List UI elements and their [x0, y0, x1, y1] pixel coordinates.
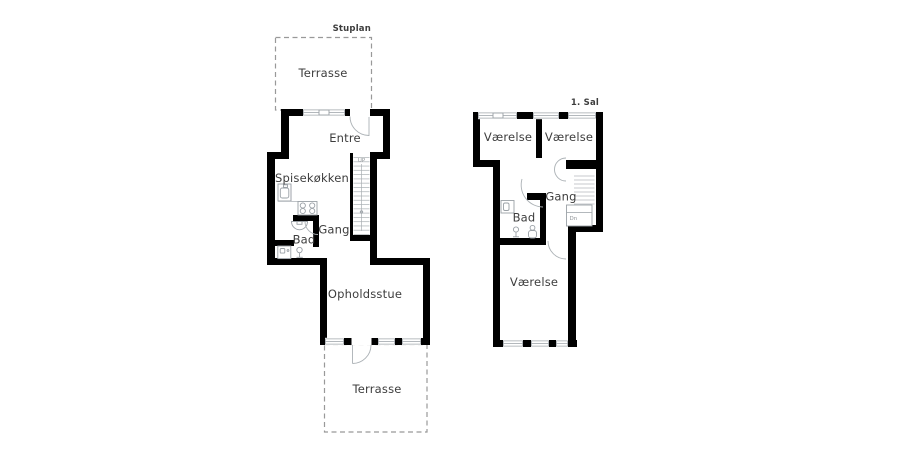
window [533, 112, 559, 119]
wall-segment [267, 258, 327, 265]
room-label-terrace-top: Terrasse [297, 66, 347, 80]
plan-title-ground: Stuplan [333, 24, 371, 34]
wall-segment [350, 153, 353, 240]
room-label-entre: Entre [329, 131, 361, 145]
door-opening-terrace [352, 338, 372, 345]
door-opening-entre [350, 109, 370, 116]
wall-segment [370, 152, 377, 265]
wall-segment [568, 225, 576, 347]
wall-segment [473, 112, 480, 167]
door-swing-arc [353, 345, 372, 364]
wall-segment [596, 112, 603, 232]
plan-title-first: 1. Sal [571, 98, 599, 108]
wall-segment [566, 160, 603, 169]
wall-segment [350, 235, 377, 241]
room-label-bedroom-left: Værelse [484, 130, 532, 144]
wall-segment [281, 109, 289, 159]
wall-segment [275, 240, 294, 246]
wall-segment [320, 258, 327, 345]
kitchen-counter [278, 184, 317, 215]
room-label-bedroom-right: Værelse [545, 130, 593, 144]
pedestal-sink [513, 227, 518, 232]
floorplan-image: UP [0, 0, 905, 460]
window-mullion [493, 113, 503, 118]
window [568, 112, 596, 119]
toilet [297, 247, 302, 252]
staircase-up: UP [354, 158, 370, 235]
room-label-kitchen: Spisekøkken [275, 171, 349, 185]
window [402, 338, 421, 345]
room-label-bath: Bad [513, 211, 536, 225]
room-label-hall: Gang [545, 190, 576, 204]
wall-segment [383, 109, 390, 159]
window-mullion [319, 110, 329, 115]
washing-machine [278, 246, 291, 259]
room-label-hall: Gang [318, 223, 349, 237]
wall-segment [423, 258, 430, 345]
window [378, 338, 395, 345]
room-label-bedroom-lower: Værelse [510, 275, 558, 289]
wall-segment [493, 238, 546, 245]
ground-floor-plan: UP [267, 24, 430, 432]
room-label-bath: Bad [293, 233, 316, 247]
window [531, 340, 549, 347]
wall-segment [493, 160, 500, 347]
floorplan-page: UP [0, 0, 905, 460]
room-label-terrace-bottom: Terrasse [351, 382, 401, 396]
window [303, 109, 345, 116]
window [503, 340, 523, 347]
window [478, 112, 517, 119]
stairs-direction-label: UP [358, 158, 366, 164]
wall-segment [370, 258, 430, 265]
window [325, 338, 344, 345]
wall-segment [267, 152, 275, 265]
toilet-bowl [529, 231, 537, 239]
toilet-tank [530, 225, 535, 230]
window [556, 340, 568, 347]
room-label-living: Opholdsstue [328, 287, 402, 301]
door-swing-arc [548, 241, 566, 259]
stair-treads [574, 176, 595, 204]
first-floor-walls [473, 112, 603, 347]
stairs-direction-label: Dn [570, 216, 578, 222]
door-swing-arc [555, 158, 567, 181]
first-floor-plan: Dn 1. Sal Værelse Værelse Gang Bad Værel… [473, 98, 603, 347]
